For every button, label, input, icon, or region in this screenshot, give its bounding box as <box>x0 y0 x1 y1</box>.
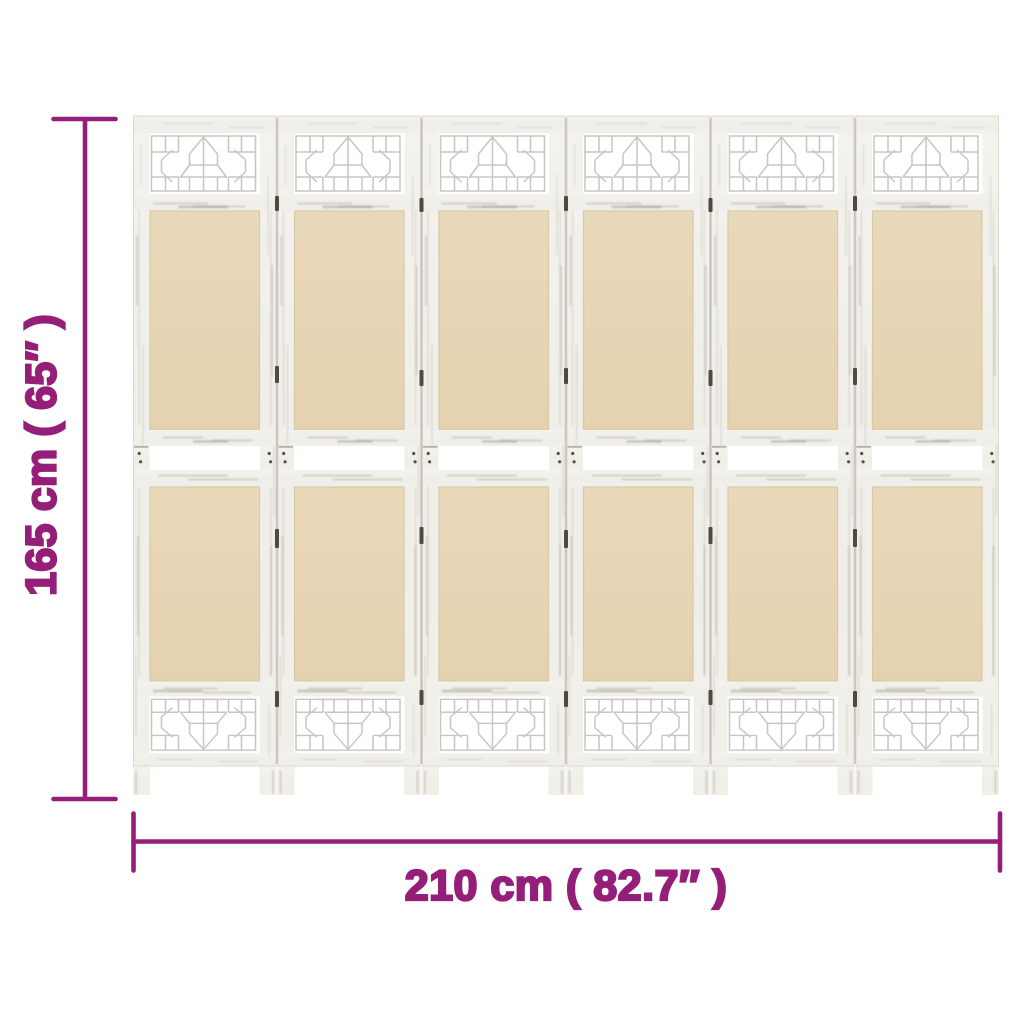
svg-text:210 cm ( 82.7″ ): 210 cm ( 82.7″ ) <box>405 862 728 910</box>
svg-text:165 cm ( 65″ ): 165 cm ( 65″ ) <box>18 314 66 596</box>
